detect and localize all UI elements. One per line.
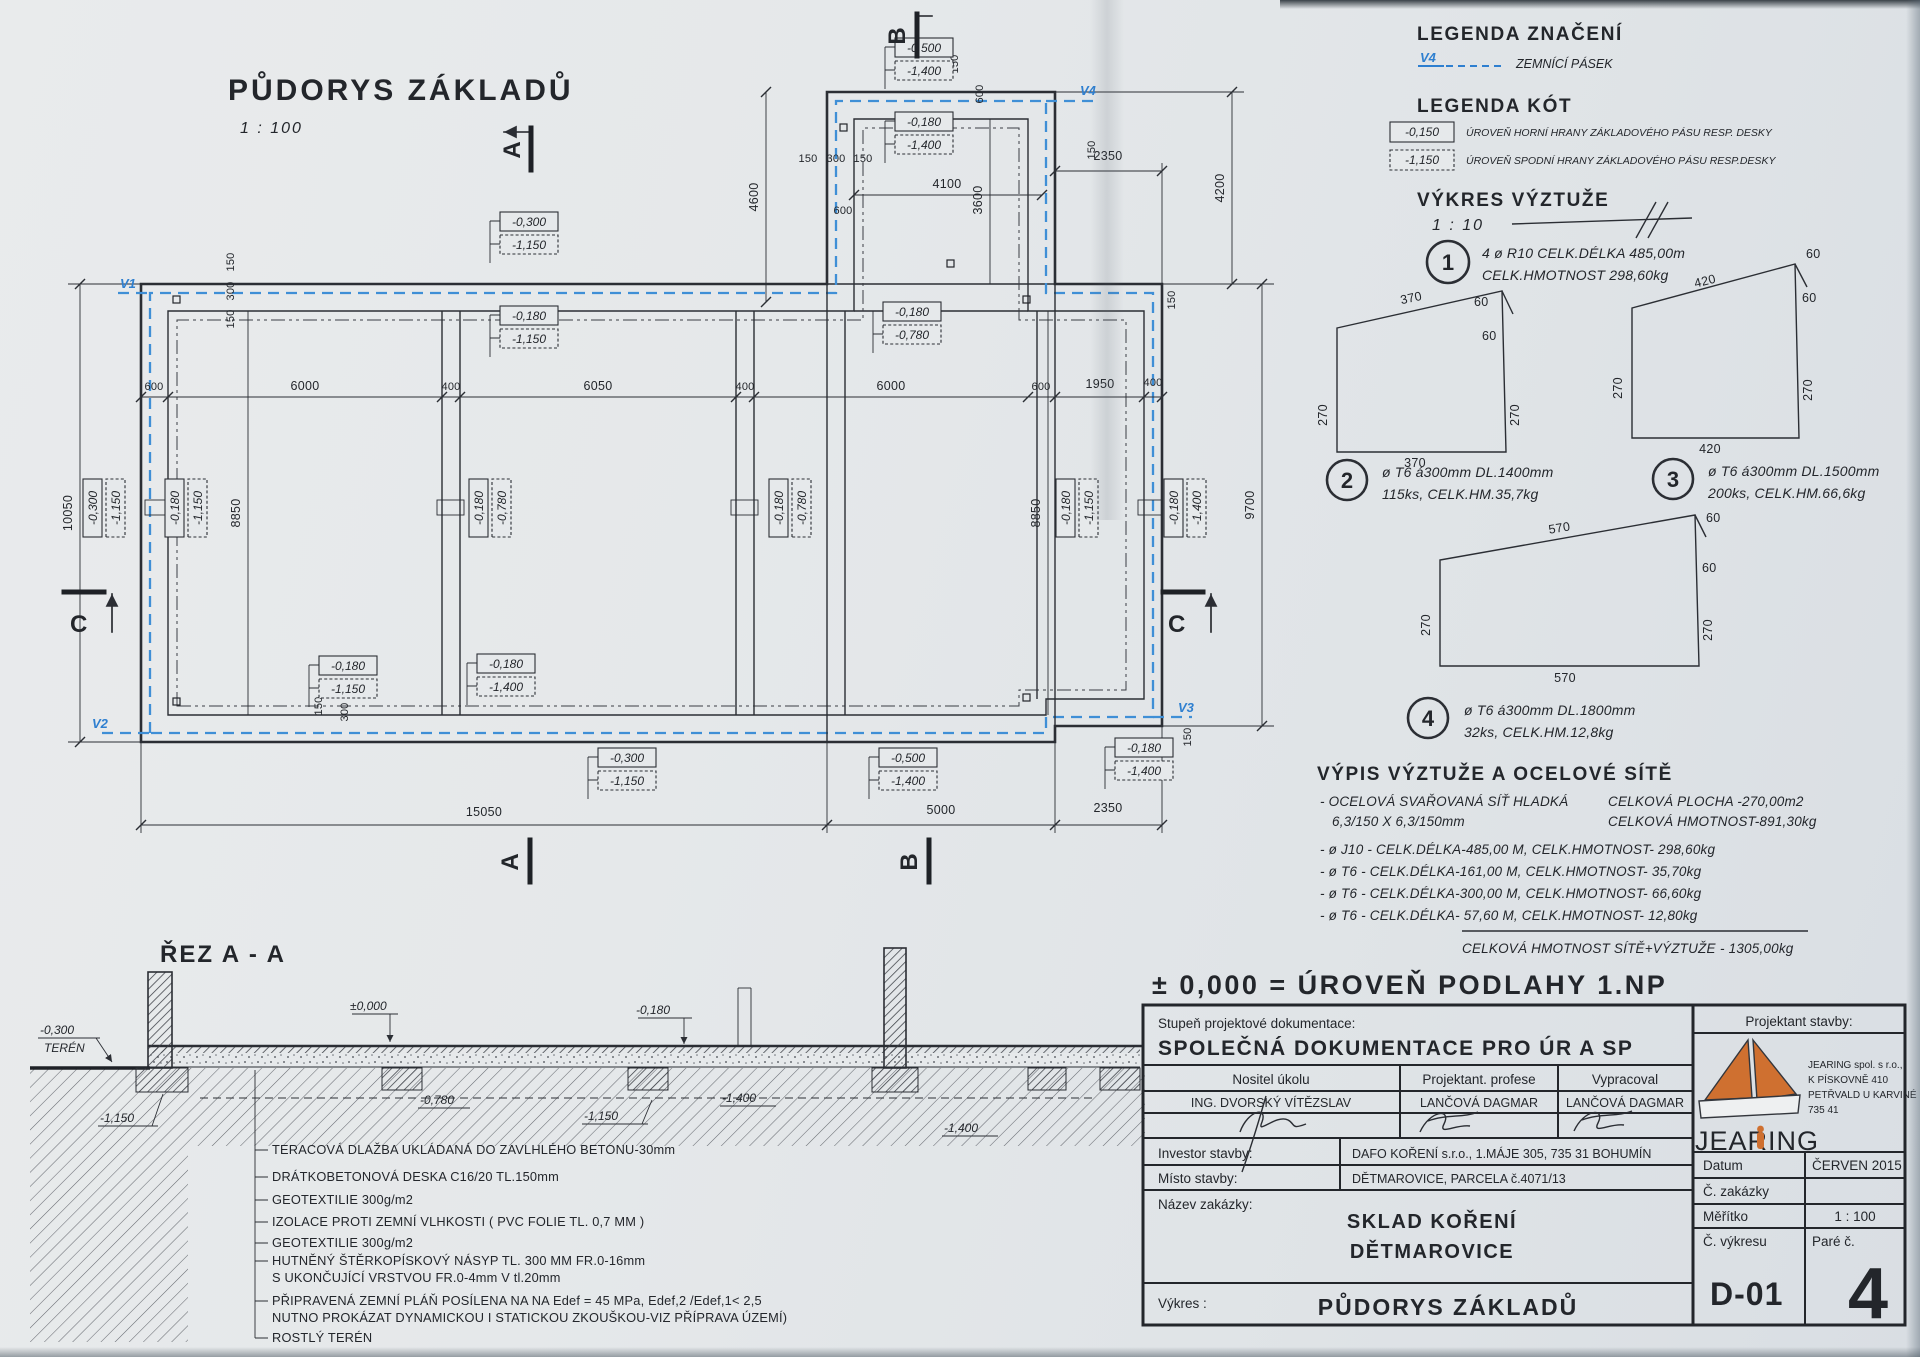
level-pair: -0,180 -1,150	[165, 479, 207, 537]
detail-text: 4 ø R10 CELK.DÉLKA 485,00m	[1482, 245, 1685, 261]
level-label: -1,150	[100, 1111, 134, 1125]
section-aa: ŘEZ A - A ±0,000 -0,300 TERÉN -0,180 -0,…	[30, 940, 1145, 1345]
dim-vertical-interior: 8850 8850	[229, 311, 1048, 715]
scale-value: 1 : 100	[1834, 1209, 1875, 1224]
level-label: -1,400	[944, 1121, 978, 1135]
legend-symbols: LEGENDA ZNAČENÍ V4 ZEMNÍCÍ PÁSEK	[1417, 23, 1623, 71]
material-item: DRÁTKOBETONOVÁ DESKA C16/20 TL.150mm	[272, 1169, 559, 1184]
company-line: 735 41	[1808, 1105, 1839, 1116]
dim-right: 4200 9700	[1055, 87, 1274, 731]
level-value: -0,500	[907, 41, 941, 55]
material-item: PŘIPRAVENÁ ZEMNÍ PLÁŇ POSÍLENA NA NA Ede…	[272, 1293, 762, 1308]
level-pair: -0,180 -0,780	[769, 479, 811, 537]
shape-dim: 60	[1706, 511, 1721, 525]
shape-dim: 420	[1699, 442, 1721, 456]
dim-label: 300	[339, 703, 351, 722]
legend-level-desc: ÚROVEŇ HORNÍ HRANY ZÁKLADOVÉHO PÁSU RESP…	[1466, 126, 1773, 139]
plan-outer-outline	[141, 92, 1162, 742]
rebar-title: VÝKRES VÝZTUŽE	[1417, 189, 1609, 211]
shape-dim: 60	[1806, 247, 1821, 261]
dim-label: 150	[225, 253, 237, 272]
level-value: -0,180	[489, 657, 523, 671]
investor-value: DAFO KOŘENÍ s.r.o., 1.MÁJE 305, 735 31 B…	[1352, 1146, 1651, 1161]
person-name: LANČOVÁ DAGMAR	[1420, 1095, 1538, 1110]
dim-label: 150	[1166, 291, 1178, 310]
plan-scale: 1 : 100	[240, 120, 303, 137]
section-mark-a-bottom: A	[497, 853, 524, 870]
earthing-label-v2: V2	[92, 716, 109, 731]
company-address: JEARING spol. s r.o., K PÍSKOVNĚ 410 PET…	[1808, 1060, 1917, 1116]
level-value: -0,180	[1059, 491, 1073, 525]
dim-label: 2350	[1093, 801, 1122, 815]
shape-dim: 570	[1548, 519, 1572, 536]
shape-dim: 60	[1474, 295, 1489, 309]
section-mark-b-top: B	[884, 27, 911, 44]
earthing-labels: V1 V2 V3 V4	[92, 83, 1195, 731]
section-mark-b-bottom: B	[896, 853, 923, 870]
level-pair: -0,300 -1,150	[83, 479, 125, 537]
material-item: IZOLACE PROTI ZEMNÍ VLHKOSTI ( PVC FOLIE…	[272, 1214, 644, 1229]
shape-dim: 60	[1702, 561, 1717, 575]
level-value: -0,780	[495, 491, 509, 525]
level-value: -0,300	[512, 215, 546, 229]
rebar-detail-4: 4 ø T6 á300mm DL.1800mm 32ks, CELK.HM.12…	[1408, 698, 1636, 740]
level-pair: -0,180 -0,780	[873, 302, 941, 353]
dim-small: 150 300 150 150 300 150 300 150 150 600 …	[225, 55, 1194, 747]
level-value: -1,150	[512, 238, 546, 252]
dim-label: 600	[834, 205, 853, 217]
plan-header: PŮDORYS ZÁKLADŮ 1 : 100	[228, 71, 574, 137]
material-item: NUTNO PROKÁZAT DYNAMICKOU I STATICKOU ZK…	[272, 1310, 787, 1325]
level-value: -0,180	[772, 491, 786, 525]
dim-label: 8850	[229, 498, 243, 527]
level-label: ±0,000	[350, 999, 387, 1013]
schedule-row: CELKOVÁ HMOTNOST-891,30kg	[1608, 814, 1817, 829]
level-pair: -0,180 -0,780	[469, 479, 511, 537]
level-value: -0,780	[895, 328, 929, 342]
shape-dim: 60	[1802, 291, 1817, 305]
dim-label: 1950	[1085, 377, 1114, 391]
detail-number: 3	[1667, 467, 1679, 492]
logo-roof-right	[1753, 1040, 1796, 1100]
legend-symbols-title: LEGENDA ZNAČENÍ	[1417, 23, 1623, 45]
scale-label: Měřítko	[1703, 1209, 1748, 1224]
designer-label: Projektant stavby:	[1745, 1014, 1852, 1029]
level-value: -1,400	[891, 774, 925, 788]
order-name-line1: SKLAD KOŘENÍ	[1347, 1209, 1517, 1233]
level-value: -1,150	[610, 774, 644, 788]
material-item: ROSTLÝ TERÉN	[272, 1330, 372, 1345]
shape-dim: 370	[1399, 289, 1423, 307]
copy-no-value: 4	[1848, 1254, 1888, 1334]
schedule-row: - ø T6 - CELK.DÉLKA-161,00 M, CELK.HMOTN…	[1320, 864, 1702, 879]
dim-label: 150	[225, 310, 237, 329]
level-label: -0,180	[636, 1003, 670, 1017]
col-header: Projektant. profese	[1422, 1072, 1535, 1087]
rebar-scale: 1 : 10	[1432, 217, 1484, 234]
dim-label: 4200	[1213, 173, 1227, 202]
detail-text: ø T6 á300mm DL.1500mm	[1708, 463, 1880, 479]
detail-text: 200ks, CELK.HM.66,6kg	[1707, 485, 1866, 501]
company-line: JEARING spol. s r.o.,	[1808, 1060, 1902, 1071]
schedule-row: 6,3/150 X 6,3/150mm	[1332, 814, 1465, 829]
dim-label: 15050	[466, 805, 502, 819]
rebar-detail-3: 3 ø T6 á300mm DL.1500mm 200ks, CELK.HM.6…	[1653, 459, 1880, 501]
logo-roof-left	[1705, 1040, 1752, 1100]
schedule-total-value: - 1305,00kg	[1720, 941, 1794, 956]
order-name-label: Název zakázky:	[1158, 1197, 1253, 1212]
site-label: Místo stavby:	[1158, 1171, 1238, 1186]
interior-foundation-strips	[145, 284, 1162, 742]
dim-label: 8850	[1029, 498, 1043, 527]
dim-label: 400	[1144, 377, 1163, 389]
material-item: TERACOVÁ DLAŽBA UKLÁDANÁ DO ZAVLHLÉHO BE…	[272, 1142, 675, 1157]
dim-label: 150	[313, 697, 325, 716]
level-pair: -0,500 -1,400	[869, 748, 937, 799]
level-value: -0,180	[1127, 741, 1161, 755]
level-pair: -0,180 -1,400	[467, 654, 535, 705]
schedule-row: - OCELOVÁ SVAŘOVANÁ SÍŤ HLADKÁ	[1320, 794, 1568, 809]
rebar-shape-1: 370 60 60 270 270 370	[1316, 289, 1522, 470]
detail-number: 2	[1341, 468, 1353, 493]
legend-levels-title: LEGENDA KÓT	[1417, 95, 1572, 117]
legend-level-value: -1,150	[1405, 153, 1439, 167]
scanned-drawing-sheet: PŮDORYS ZÁKLADŮ 1 : 100 15050 5000	[0, 0, 1920, 1357]
legend-levels: LEGENDA KÓT -0,150 ÚROVEŇ HORNÍ HRANY ZÁ…	[1390, 95, 1776, 170]
person-name: ING. DVORSKÝ VÍTĚZSLAV	[1191, 1095, 1352, 1110]
earthing-symbol-label: V4	[1420, 50, 1437, 65]
detail-text: CELK.HMOTNOST 298,60kg	[1482, 267, 1668, 283]
order-no-label: Č. zakázky	[1703, 1184, 1769, 1199]
shape-dim: 420	[1693, 272, 1718, 291]
section-mark-a-top: A	[499, 141, 526, 158]
drawing-no-label: Č. výkresu	[1703, 1234, 1767, 1249]
dim-label: 5000	[926, 803, 955, 817]
level-label: TERÉN	[44, 1040, 85, 1055]
schedule-row: - ø T6 - CELK.DÉLKA-300,00 M, CELK.HMOTN…	[1320, 886, 1702, 901]
level-value: -1,150	[109, 491, 123, 525]
investor-label: Investor stavby:	[1158, 1146, 1253, 1161]
level-value: -0,500	[891, 751, 925, 765]
earthing-label-v4: V4	[1080, 83, 1097, 98]
level-pair: -0,180 -1,150	[490, 306, 558, 357]
legend-level-value: -0,150	[1405, 125, 1439, 139]
drawing-name: PŮDORYS ZÁKLADŮ	[1318, 1291, 1578, 1320]
level-value: -1,400	[907, 64, 941, 78]
detail-text: 115ks, CELK.HM.35,7kg	[1382, 486, 1538, 502]
soil-hatch-left	[30, 1068, 188, 1342]
dim-label: 300	[225, 282, 237, 301]
shape-dim: 270	[1801, 379, 1815, 401]
material-item: GEOTEXTILIE 300g/m2	[272, 1235, 413, 1250]
section-mark-c-right: C	[1168, 611, 1185, 638]
plan-inner-outline	[168, 119, 1144, 715]
doc-stage: SPOLEČNÁ DOKUMENTACE PRO ÚR A SP	[1158, 1036, 1633, 1060]
detail-text: ø T6 á300mm DL.1400mm	[1382, 464, 1554, 480]
material-item: GEOTEXTILIE 300g/m2	[272, 1192, 413, 1207]
person-name: LANČOVÁ DAGMAR	[1566, 1095, 1684, 1110]
rebar-details: VÝKRES VÝZTUŽE 1 : 10 1 4 ø R10 CELK.DÉL…	[1316, 189, 1880, 740]
schedule-row: - ø T6 - CELK.DÉLKA- 57,60 M, CELK.HMOTN…	[1320, 908, 1698, 923]
schedule-row: CELKOVÁ PLOCHA -270,00m2	[1608, 794, 1804, 809]
earthing-label-v3: V3	[1178, 700, 1195, 715]
legend-symbol-desc: ZEMNÍCÍ PÁSEK	[1515, 56, 1613, 71]
shape-dim: 270	[1508, 404, 1522, 426]
level-value: -1,400	[1190, 491, 1204, 525]
level-pair: -0,300 -1,150	[490, 212, 558, 263]
level-value: -0,180	[472, 491, 486, 525]
level-value: -1,150	[191, 491, 205, 525]
dim-label: 150	[1182, 728, 1194, 747]
company-line: PETŘVALD U KARVINÉ	[1808, 1088, 1917, 1101]
company-line: K PÍSKOVNĚ 410	[1808, 1073, 1888, 1086]
level-pair: -0,180 -1,150	[1056, 479, 1098, 537]
shape-dim: 60	[1482, 329, 1497, 343]
shape-dim: 270	[1701, 619, 1715, 641]
date-value: ČERVEN 2015	[1812, 1158, 1902, 1173]
schedule-row: - ø J10 - CELK.DÉLKA-485,00 M, CELK.HMOT…	[1320, 842, 1715, 857]
level-pair: -0,180 -1,400	[1164, 479, 1206, 537]
drawing-svg: PŮDORYS ZÁKLADŮ 1 : 100 15050 5000	[0, 0, 1920, 1357]
level-pair: -0,180 -1,400	[1105, 738, 1173, 789]
section-mark-c-left: C	[70, 611, 87, 638]
dim-label: 6000	[876, 379, 905, 393]
level-pair: -0,300 -1,150	[588, 748, 656, 799]
drawing-label: Výkres :	[1158, 1296, 1207, 1311]
dim-label: 300	[827, 153, 846, 165]
dim-label: 4100	[932, 177, 961, 191]
detail-number: 4	[1422, 706, 1435, 731]
legend-level-desc: ÚROVEŇ SPODNÍ HRANY ZÁKLADOVÉHO PÁSU RES…	[1466, 154, 1776, 167]
section-title: ŘEZ A - A	[160, 940, 286, 968]
order-name-line2: DĚTMAROVICE	[1350, 1239, 1514, 1263]
material-item: S UKONČUJÍCÍ VRSTVOU FR.0-4mm V tl.20mm	[272, 1270, 561, 1285]
shape-dim: 270	[1611, 377, 1625, 399]
level-value: -0,300	[86, 491, 100, 525]
dim-row: 600 6000 400 6050 400 6000 600 1950 400	[136, 377, 1167, 402]
level-value: -0,180	[331, 659, 365, 673]
rebar-shape-3: 570 60 60 270 270 570	[1419, 511, 1721, 685]
level-value: -1,150	[331, 682, 365, 696]
level-value: -1,400	[1127, 764, 1161, 778]
material-item: HUTNĚNÝ ŠTĚRKOPÍSKOVÝ NÁSYP TL. 300 MM F…	[272, 1253, 645, 1268]
dim-label: 150	[854, 153, 873, 165]
earthing-connectors	[173, 124, 1030, 705]
schedule-total-label: CELKOVÁ HMOTNOST SÍTĚ+VÝZTUŽE	[1462, 941, 1717, 956]
dim-label: 600	[145, 381, 164, 393]
rebar-detail-2: 2 ø T6 á300mm DL.1400mm 115ks, CELK.HM.3…	[1327, 460, 1554, 502]
level-pair: -0,180 -1,400	[885, 112, 953, 163]
detail-number: 1	[1442, 250, 1454, 275]
wall-left	[148, 972, 172, 1068]
rebar-detail-1: 1 4 ø R10 CELK.DÉLKA 485,00m CELK.HMOTNO…	[1427, 241, 1685, 283]
detail-text: ø T6 á300mm DL.1800mm	[1464, 702, 1636, 718]
jearing-logo: JEARING	[1695, 1040, 1819, 1156]
dim-label: 400	[442, 381, 461, 393]
level-value: -0,180	[1167, 491, 1181, 525]
logo-pin-icon	[1757, 1132, 1764, 1149]
title-block: Stupeň projektové dokumentace: SPOLEČNÁ …	[1143, 1005, 1917, 1334]
dim-label: 600	[974, 85, 986, 104]
date-label: Datum	[1703, 1158, 1743, 1173]
level-value: -0,180	[907, 115, 941, 129]
shape-dim: 570	[1554, 671, 1576, 685]
level-label: -0,300	[40, 1023, 74, 1037]
col-header: Vypracoval	[1592, 1072, 1658, 1087]
drawing-no-value: D-01	[1710, 1276, 1783, 1312]
level-value: -0,180	[895, 305, 929, 319]
dim-top: 2350 4600 4100 3600	[747, 87, 1167, 307]
dim-label: 150	[1086, 141, 1098, 160]
shape-dim: 270	[1316, 404, 1330, 426]
level-value: -0,180	[168, 491, 182, 525]
dim-label: 3600	[971, 185, 985, 214]
dim-label: 400	[736, 381, 755, 393]
page-title: PŮDORYS ZÁKLADŮ	[228, 71, 574, 107]
foundation-plan: 15050 5000 2350 10050 4200 9700 2350 460…	[61, 14, 1274, 882]
dim-label: 10050	[61, 495, 75, 531]
shape-dim: 270	[1419, 614, 1433, 636]
dim-label: 4600	[747, 182, 761, 211]
col-header: Nositel úkolu	[1232, 1072, 1309, 1087]
level-value: -1,400	[489, 680, 523, 694]
dim-label: 9700	[1243, 490, 1257, 519]
schedule-title: VÝPIS VÝZTUŽE A OCELOVÉ SÍTĚ	[1317, 763, 1673, 785]
level-value: -0,180	[512, 309, 546, 323]
dim-label: 6000	[290, 379, 319, 393]
wall-right	[884, 948, 906, 1068]
level-value: -1,400	[907, 138, 941, 152]
rebar-schedule: VÝPIS VÝZTUŽE A OCELOVÉ SÍTĚ - OCELOVÁ S…	[1317, 763, 1817, 956]
dim-label: 6050	[583, 379, 612, 393]
level-label: -1,400	[722, 1091, 756, 1105]
level-value: -0,780	[795, 491, 809, 525]
level-label: -1,150	[584, 1109, 618, 1123]
dim-label: 150	[799, 153, 818, 165]
copy-no-label: Paré č.	[1812, 1234, 1855, 1249]
level-label: -0,780	[420, 1093, 454, 1107]
site-value: DĚTMAROVICE, PARCELA č.4071/13	[1352, 1171, 1566, 1186]
doc-stage-label: Stupeň projektové dokumentace:	[1158, 1016, 1355, 1031]
earthing-label-v1: V1	[120, 276, 136, 291]
level-value: -0,300	[610, 751, 644, 765]
earthing-strip-line	[150, 101, 1153, 733]
level-value: -1,150	[512, 332, 546, 346]
level-reference-note: ± 0,000 = ÚROVEŇ PODLAHY 1.NP	[1152, 969, 1667, 1000]
level-value: -1,150	[1082, 491, 1096, 525]
detail-text: 32ks, CELK.HM.12,8kg	[1464, 724, 1614, 740]
